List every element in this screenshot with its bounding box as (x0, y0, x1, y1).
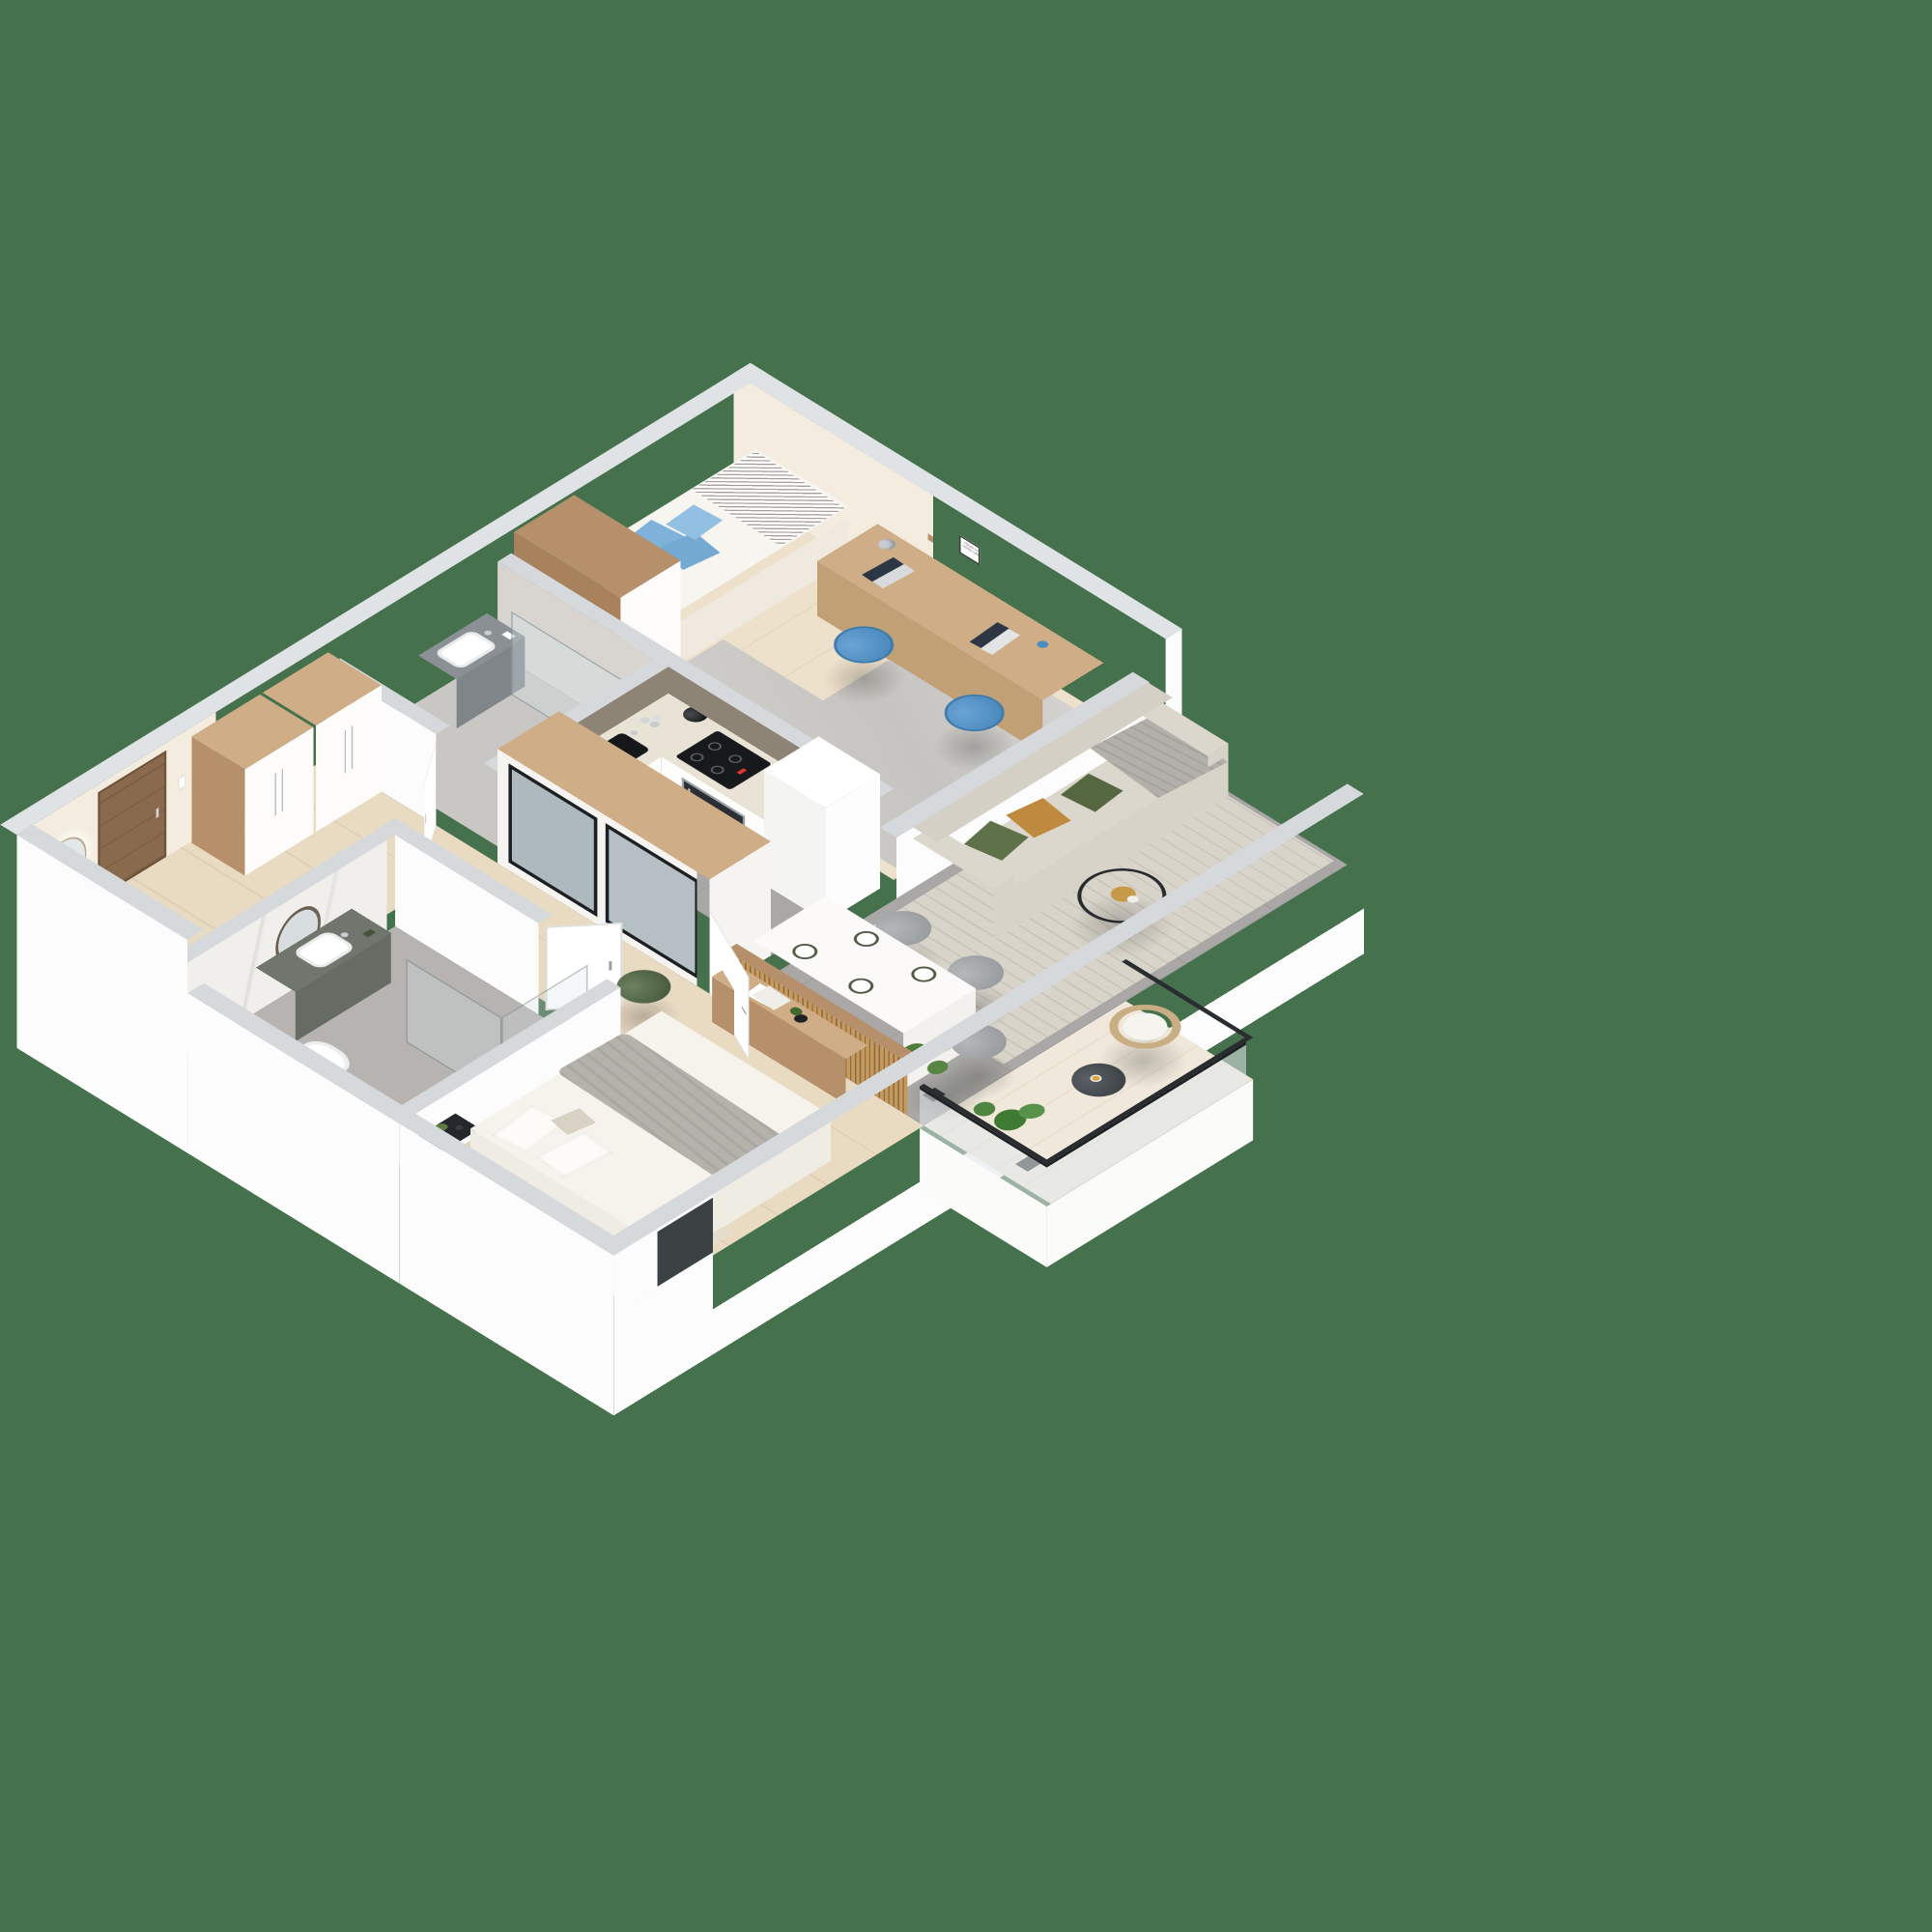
wc-faucet (483, 630, 494, 637)
green-canvas: { "scene": { "type": "isometric-3d-floor… (0, 0, 1932, 1932)
hob-red-display (737, 768, 748, 775)
door-handle (156, 808, 159, 818)
wardrobe-handle (345, 730, 346, 774)
wardrobe-handle (275, 773, 276, 816)
drink-glass (1088, 1073, 1104, 1083)
hob-ring (705, 741, 724, 753)
bath-soap (362, 929, 376, 938)
wardrobe-handle (352, 725, 353, 769)
window-mullion (739, 1178, 745, 1236)
chair-cushion (1114, 1008, 1177, 1046)
desk-lamp (874, 537, 898, 553)
bed-pillow (535, 1132, 612, 1179)
hob-ring (708, 764, 727, 776)
wc-door-handle (426, 813, 427, 824)
glass-set (648, 721, 662, 729)
wardrobe-handle (282, 769, 283, 812)
poster-shield-star (646, 488, 652, 497)
plate-setting (906, 963, 942, 985)
hob-ring (688, 752, 707, 763)
plate-setting (849, 928, 885, 951)
window-mullion (828, 1123, 834, 1181)
bath-door-handle (609, 961, 611, 971)
poster-shield (639, 474, 659, 510)
pencil-cup (1035, 639, 1051, 649)
hob-ring (725, 753, 745, 765)
apartment-floor-plan: TODAY IS GOOD DAY (33, 497, 1508, 1406)
kitchen-faucet (629, 729, 639, 736)
bed-cushion (551, 1108, 596, 1135)
intercom-panel (180, 776, 185, 790)
bedroom-door-handle (742, 1006, 747, 1015)
reed-diffuser (454, 1124, 465, 1131)
plate-setting (787, 941, 823, 963)
plate-setting (843, 975, 879, 997)
balcony-door-frame (1022, 1007, 1026, 1061)
